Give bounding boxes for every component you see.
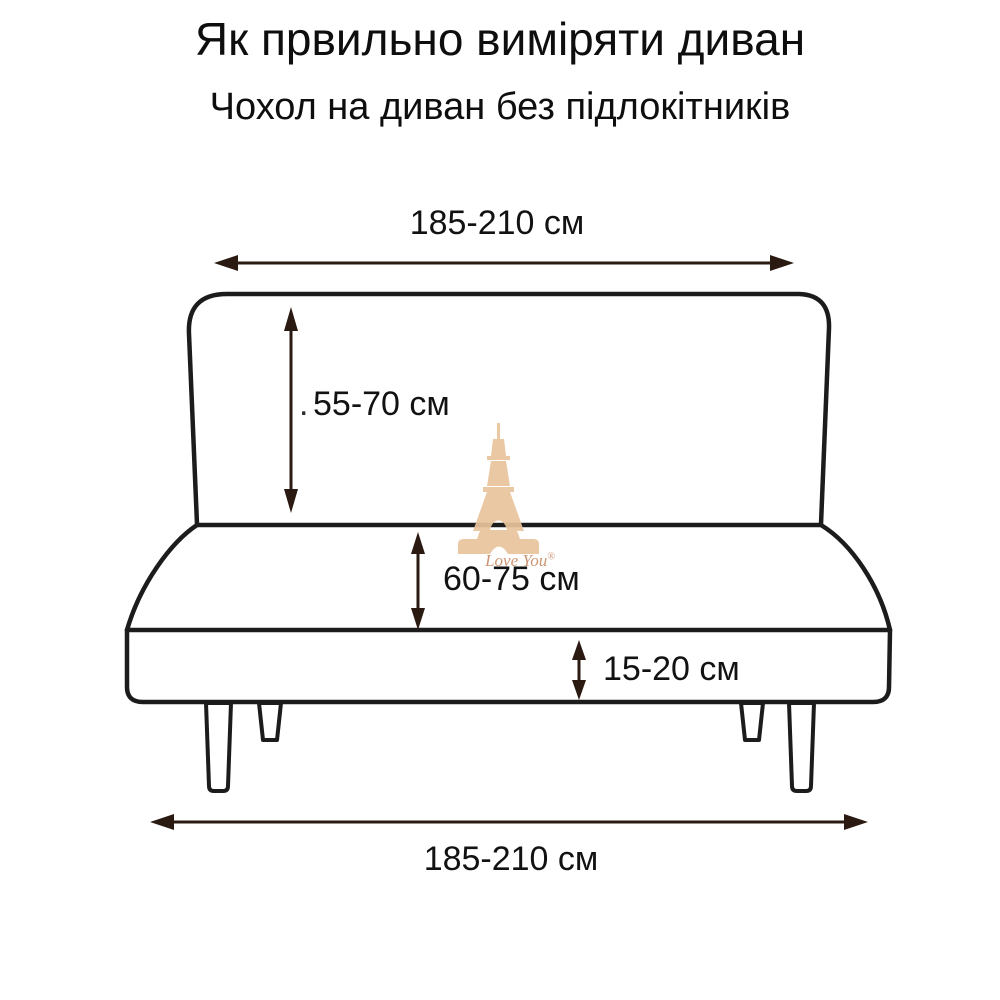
seat-left-bulge — [127, 525, 197, 630]
measurement-bottom-width: 185-210 см — [411, 840, 611, 879]
front-left-leg — [206, 703, 231, 791]
stray-dot-artifact: . — [299, 385, 308, 424]
measurement-infographic: Як првильно виміряти диван Чохол на дива… — [0, 0, 1000, 1000]
front-right-leg — [789, 703, 814, 791]
watermark-brand-name: Love You — [485, 551, 547, 570]
top-width-arrow — [214, 255, 794, 271]
base-height-arrow — [572, 640, 586, 700]
eiffel-tower-icon — [458, 423, 539, 554]
back-height-arrow — [284, 307, 298, 513]
back-left-leg — [259, 703, 281, 740]
seat-height-arrow — [411, 532, 425, 630]
measurement-top-width: 185-210 см — [397, 204, 597, 243]
back-right-leg — [741, 703, 763, 740]
measurement-base-height: 15-20 см — [603, 650, 740, 689]
sofa-legs — [206, 703, 814, 791]
watermark-brand: Love You® — [470, 551, 570, 571]
registered-trademark-symbol: ® — [547, 551, 555, 562]
bottom-width-arrow — [150, 814, 868, 830]
measurement-back-height: 55-70 см — [313, 385, 450, 424]
base-outline — [127, 630, 890, 702]
seat-right-bulge — [821, 525, 890, 630]
